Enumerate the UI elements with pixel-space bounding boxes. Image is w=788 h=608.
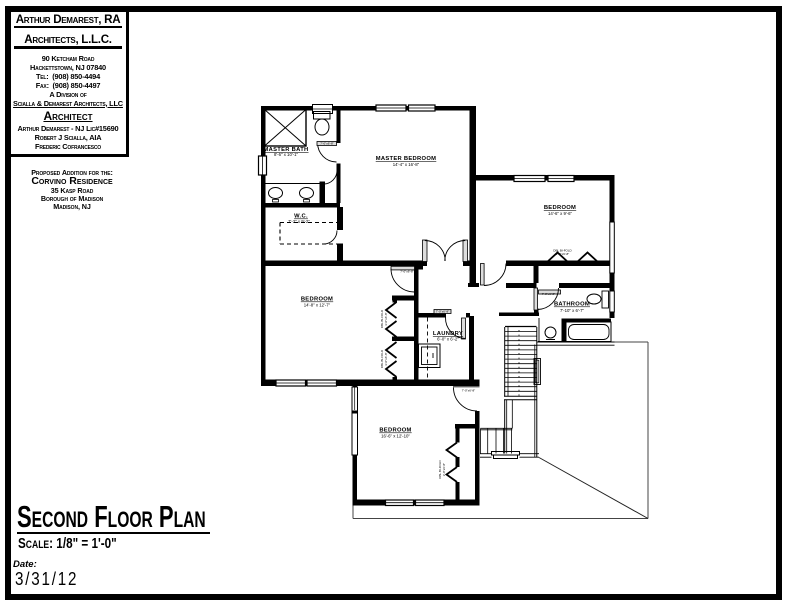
svg-text:7'-0"x6'-8": 7'-0"x6'-8"	[436, 310, 449, 314]
svg-text:8'-6" x 10'-1": 8'-6" x 10'-1"	[274, 152, 299, 157]
svg-text:3'-0"x6'-8": 3'-0"x6'-8"	[384, 312, 388, 325]
svg-text:16'-6" x 12'-10": 16'-6" x 12'-10"	[381, 434, 410, 439]
svg-text:6'-0" x 6'-2": 6'-0" x 6'-2"	[437, 337, 459, 342]
svg-text:BATHROOM: BATHROOM	[554, 302, 590, 308]
svg-text:14'-6" x 9'-6": 14'-6" x 9'-6"	[548, 211, 573, 216]
svg-text:3'-0"x6'-8": 3'-0"x6'-8"	[556, 252, 569, 256]
svg-text:7'-0"x6'-8": 7'-0"x6'-8"	[462, 389, 475, 393]
svg-text:14'-8" x 12'-7": 14'-8" x 12'-7"	[304, 303, 331, 308]
svg-text:7'-10" x 6'-7": 7'-10" x 6'-7"	[560, 308, 585, 313]
svg-text:7'-0"x6'-8": 7'-0"x6'-8"	[320, 142, 333, 146]
svg-text:7'-2" x 9'-2": 7'-2" x 9'-2"	[288, 219, 310, 224]
svg-text:7'-0"x6'-8": 7'-0"x6'-8"	[542, 292, 555, 296]
svg-text:7'-0"x6'-8": 7'-0"x6'-8"	[400, 270, 413, 274]
svg-text:14'-4" x 16'-8": 14'-4" x 16'-8"	[393, 162, 420, 167]
svg-text:3'-0"x6'-8": 3'-0"x6'-8"	[384, 352, 388, 365]
svg-text:3'-0"x6'-8": 3'-0"x6'-8"	[442, 463, 446, 476]
